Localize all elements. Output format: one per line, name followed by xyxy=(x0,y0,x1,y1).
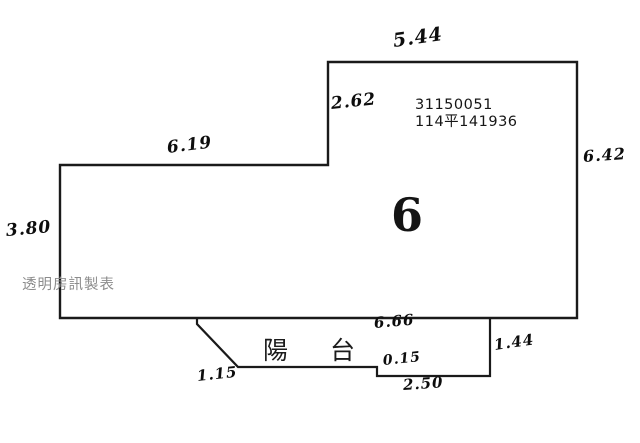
dimension-balcony-top: 6.66 xyxy=(373,311,415,332)
dimension-balcony-bottom: 2.50 xyxy=(402,373,444,394)
floor-plan-drawing xyxy=(0,0,640,443)
dimension-left: 3.80 xyxy=(5,217,52,241)
watermark-text: 透明房訊製表 xyxy=(22,273,115,294)
parcel-info: 31150051 114平141936 xyxy=(415,97,518,131)
balcony-label: 陽台 xyxy=(263,331,397,367)
floor-plan-page: 5.44 2.62 6.19 3.80 6.42 6.66 1.15 0.15 … xyxy=(0,0,640,443)
dimension-right: 6.42 xyxy=(582,144,626,166)
registration-number: 114平141936 xyxy=(415,114,518,131)
parcel-id: 31150051 xyxy=(415,97,518,114)
unit-number: 6 xyxy=(391,188,423,242)
